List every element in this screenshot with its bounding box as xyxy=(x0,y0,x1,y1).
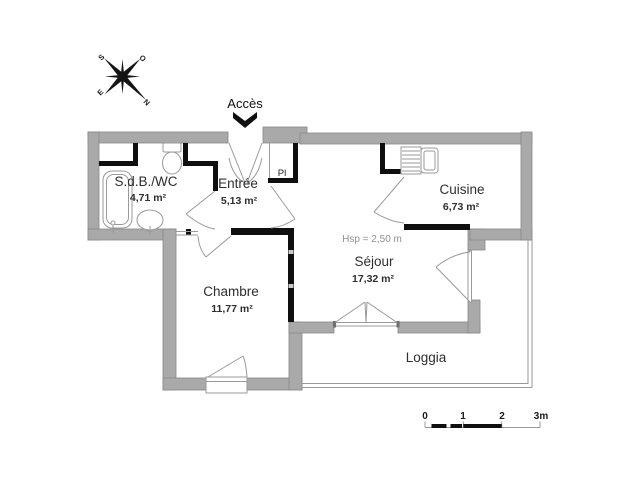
scale-dash xyxy=(432,424,447,428)
compass-ray xyxy=(123,75,141,79)
scale-tick-2: 2 xyxy=(499,411,505,422)
scale-tick-1: 1 xyxy=(460,411,466,422)
floor-plan: S O E N Accès S.d.B./WC 4,71 m² Entrée 5… xyxy=(0,0,640,480)
compass-ray xyxy=(121,77,125,95)
wall-segment xyxy=(293,143,298,183)
scale-tick-0: 0 xyxy=(422,411,428,422)
compass-label-south: S xyxy=(96,52,106,62)
room-area-cuisine: 6,73 m² xyxy=(443,201,480,213)
access-marker: Accès xyxy=(227,96,263,128)
scale-dash xyxy=(451,424,463,428)
wall-gap xyxy=(289,284,294,288)
wall-segment xyxy=(99,161,138,166)
compass-rose: S O E N xyxy=(95,52,151,107)
room-label-cuisine: Cuisine xyxy=(439,182,484,197)
wall-segment xyxy=(88,132,99,240)
scale-bar: 0 1 2 3m xyxy=(422,411,548,428)
hall-living-door xyxy=(271,186,295,228)
access-arrow-icon xyxy=(233,112,257,128)
compass-label-west: O xyxy=(137,53,148,64)
wall-segment xyxy=(468,300,480,333)
loggia-outer-line xyxy=(302,240,532,388)
wall-segment xyxy=(521,132,532,240)
kitchen-door xyxy=(374,177,404,223)
wall-segment xyxy=(404,224,470,230)
scale-dash xyxy=(463,424,501,428)
bedroom-door xyxy=(176,232,231,258)
room-label-loggia: Loggia xyxy=(406,350,447,365)
wall-segment xyxy=(163,378,208,390)
scale-tick-3: 3m xyxy=(534,411,549,422)
ceiling-height-label: Hsp = 2,50 m xyxy=(342,234,402,245)
compass-label-north: N xyxy=(142,97,152,107)
floor-plan-canvas: S O E N Accès S.d.B./WC 4,71 m² Entrée 5… xyxy=(0,0,640,480)
toilet-icon xyxy=(163,143,182,174)
wall-segment xyxy=(300,133,532,144)
compass-ray xyxy=(121,59,125,77)
room-label-entree: Entrée xyxy=(218,176,258,191)
access-label: Accès xyxy=(227,96,263,111)
loggia-door xyxy=(436,251,472,302)
wall-segment xyxy=(163,229,176,390)
wall-segment xyxy=(133,143,138,166)
wall-segment xyxy=(288,228,294,322)
loggia-boundary xyxy=(302,240,532,388)
room-area-entree: 5,13 m² xyxy=(221,195,258,207)
wall-segment xyxy=(380,169,404,174)
compass-ray xyxy=(105,75,123,79)
wall-gap xyxy=(289,250,294,254)
kitchen-sink-icon xyxy=(401,147,438,174)
bedroom-window xyxy=(206,356,247,393)
wall-segment xyxy=(231,228,292,235)
outer-walls xyxy=(88,127,532,390)
wall-segment xyxy=(289,322,334,333)
room-label-chambre: Chambre xyxy=(203,284,259,299)
wall-segment xyxy=(88,132,228,143)
room-area-sejour: 17,32 m² xyxy=(352,273,395,285)
room-area-sdb: 4,71 m² xyxy=(130,192,167,204)
closet-label: Pl xyxy=(278,168,286,179)
wall-segment xyxy=(183,161,218,166)
room-label-sejour: Séjour xyxy=(354,254,394,269)
room-area-chambre: 11,77 m² xyxy=(211,303,253,315)
french-window xyxy=(333,302,400,328)
room-label-sdb: S.d.B./WC xyxy=(114,174,177,189)
compass-label-east: E xyxy=(95,87,105,97)
fixtures xyxy=(103,143,438,235)
bathroom-door xyxy=(186,191,215,229)
